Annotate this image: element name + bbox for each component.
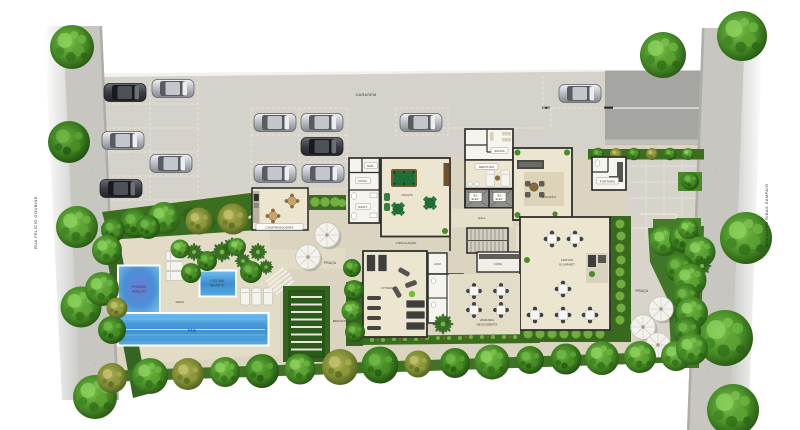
svg-text:PISCINA: PISCINA [211, 279, 226, 283]
svg-text:ACM: ACM [434, 262, 441, 266]
svg-text:CHURRASQUEIRA: CHURRASQUEIRA [266, 225, 294, 229]
svg-text:PRAÇA: PRAÇA [636, 289, 649, 293]
svg-text:PISCINA: PISCINA [132, 285, 147, 289]
svg-text:HALL: HALL [478, 216, 486, 220]
svg-text:PORTARIA: PORTARIA [600, 179, 615, 183]
svg-text:ADULTO: ADULTO [132, 290, 146, 294]
svg-text:DML.: DML. [367, 164, 374, 168]
svg-text:RUA ALFEU RIBAS SAMPAIO: RUA ALFEU RIBAS SAMPAIO [764, 184, 769, 247]
svg-text:WC: WC [497, 194, 502, 198]
svg-text:GOURMET: GOURMET [559, 263, 575, 267]
svg-text:FITNESS: FITNESS [381, 286, 395, 290]
svg-text:SAUNA: SAUNA [494, 149, 505, 153]
svg-text:GARAGEM: GARAGEM [356, 93, 377, 97]
svg-text:FUNC.: FUNC. [358, 179, 368, 183]
svg-text:JOGOS: JOGOS [401, 193, 412, 197]
svg-text:REPOUSO: REPOUSO [479, 165, 495, 169]
svg-text:RUA FELÍCIO GOUBINE: RUA FELÍCIO GOUBINE [33, 196, 38, 249]
svg-text:REDÁRIO: REDÁRIO [333, 319, 348, 323]
svg-text:PRAÇA: PRAÇA [324, 261, 337, 265]
svg-text:WC: WC [473, 194, 478, 198]
svg-text:RAIA: RAIA [188, 329, 197, 333]
svg-text:ELEV.: ELEV. [472, 197, 480, 201]
svg-text:COPA: COPA [494, 262, 502, 266]
svg-text:INFANTIL: INFANTIL [210, 284, 225, 288]
svg-text:ELEV.: ELEV. [496, 197, 504, 201]
svg-text:SAGUÃO: SAGUÃO [542, 194, 556, 199]
svg-text:SANIT.: SANIT. [358, 205, 368, 209]
svg-text:FESTAS: FESTAS [561, 258, 573, 262]
svg-text:CIRCULAÇÃO: CIRCULAÇÃO [396, 240, 417, 245]
svg-text:DECK: DECK [176, 300, 185, 304]
svg-text:DESCOBERTA: DESCOBERTA [477, 323, 498, 327]
svg-text:VARANDA: VARANDA [480, 318, 495, 322]
